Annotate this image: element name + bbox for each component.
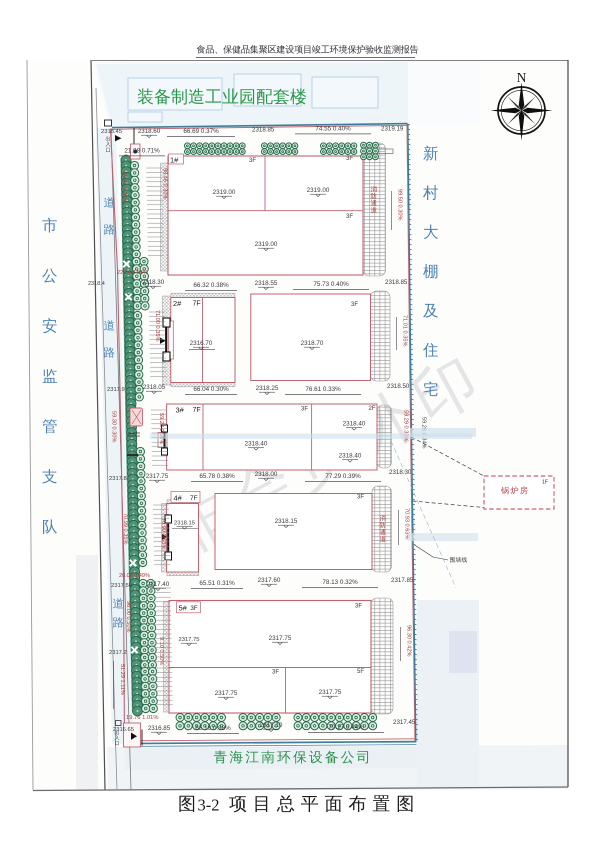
svg-text:66.69 0.37%: 66.69 0.37% (183, 128, 219, 135)
svg-text:65.51 0.31%: 65.51 0.31% (199, 580, 235, 587)
svg-text:3F: 3F (355, 604, 362, 610)
svg-text:2318.85: 2318.85 (252, 127, 275, 134)
svg-text:2F: 2F (369, 406, 376, 412)
svg-text:21.98 0.71%: 21.98 0.71% (124, 148, 160, 155)
svg-text:2316.85: 2316.85 (148, 725, 171, 732)
svg-text:96.30 0.42%: 96.30 0.42% (406, 625, 412, 656)
svg-text:2317.75: 2317.75 (215, 690, 238, 697)
svg-text:98.46 0.30%: 98.46 0.30% (162, 168, 168, 199)
svg-text:4#: 4# (174, 494, 183, 503)
svg-text:3F: 3F (346, 214, 353, 220)
svg-text:2319.00: 2319.00 (213, 189, 236, 196)
svg-text:2317.75: 2317.75 (179, 637, 200, 643)
svg-text:2317.8: 2317.8 (109, 476, 127, 482)
svg-text:3F: 3F (249, 158, 256, 164)
svg-text:N: N (517, 70, 527, 85)
svg-text:2317.9: 2317.9 (107, 387, 125, 393)
svg-text:2317.45: 2317.45 (393, 719, 416, 726)
svg-text:19.76 1.01%: 19.76 1.01% (126, 715, 159, 721)
svg-text:2318.55: 2318.55 (255, 280, 278, 287)
svg-text:2318.40: 2318.40 (245, 441, 268, 448)
svg-text:2318.15: 2318.15 (174, 521, 195, 527)
svg-text:2318.60: 2318.60 (138, 128, 161, 135)
svg-text:2319.00: 2319.00 (255, 241, 278, 248)
svg-text:2317.75: 2317.75 (146, 473, 169, 480)
svg-text:51.29 1.11%: 51.29 1.11% (119, 664, 125, 695)
svg-text:1F: 1F (542, 480, 548, 486)
svg-text:2317.75: 2317.75 (269, 635, 292, 642)
svg-text:78.13 0.32%: 78.13 0.32% (322, 579, 358, 586)
svg-text:2318.45: 2318.45 (101, 129, 122, 135)
svg-text:2317.10: 2317.10 (260, 722, 283, 729)
svg-text:74.55 0.40%: 74.55 0.40% (315, 126, 351, 133)
svg-text:2#: 2# (173, 299, 182, 308)
svg-text:59.46 0.30%: 59.46 0.30% (121, 172, 127, 203)
svg-text:2318.85: 2318.85 (385, 279, 408, 286)
svg-text:7F: 7F (190, 495, 198, 502)
svg-text:3F: 3F (357, 495, 364, 501)
svg-text:2318.40: 2318.40 (339, 453, 362, 460)
svg-text:2319.00: 2319.00 (307, 187, 330, 194)
svg-text:70.99 0.35%: 70.99 0.35% (122, 513, 128, 544)
svg-text:22.04 0.54%: 22.04 0.54% (117, 270, 148, 276)
svg-text:65.10 0.38%: 65.10 0.38% (195, 725, 231, 732)
svg-text:2318.00: 2318.00 (255, 471, 278, 478)
svg-text:2318.4: 2318.4 (88, 281, 105, 287)
svg-text:59.30 0.30%: 59.30 0.30% (111, 411, 117, 442)
svg-text:3F: 3F (346, 156, 353, 162)
svg-text:3F: 3F (351, 302, 358, 308)
svg-text:2318.40: 2318.40 (343, 421, 366, 428)
svg-text:77.29 0.39%: 77.29 0.39% (325, 473, 361, 480)
svg-text:2318.30: 2318.30 (389, 469, 412, 476)
svg-text:20.05 0.49%: 20.05 0.49% (119, 573, 150, 579)
svg-text:2319.19: 2319.19 (381, 126, 404, 133)
svg-text:7F: 7F (193, 301, 201, 308)
svg-text:3F: 3F (301, 407, 308, 413)
svg-text:3#: 3# (176, 406, 185, 415)
svg-text:2317.60: 2317.60 (258, 577, 281, 584)
svg-text:66.04 0.30%: 66.04 0.30% (193, 386, 229, 393)
svg-text:9.10 0.50%: 9.10 0.50% (158, 637, 164, 665)
svg-text:71.01 0.35%: 71.01 0.35% (402, 315, 408, 346)
svg-text:2317.75: 2317.75 (319, 689, 342, 696)
svg-text:5F: 5F (357, 669, 364, 675)
svg-text:70.90 0.63%: 70.90 0.63% (160, 518, 166, 549)
svg-text:2316.70: 2316.70 (190, 340, 213, 347)
svg-text:2316.65: 2316.65 (113, 727, 134, 733)
svg-text:76.61 0.33%: 76.61 0.33% (305, 386, 341, 393)
svg-text:79.27 0.44%: 79.27 0.44% (328, 724, 364, 731)
svg-text:2317.40: 2317.40 (147, 581, 170, 588)
svg-text:65.78 0.38%: 65.78 0.38% (199, 473, 235, 480)
svg-text:2318.15: 2318.15 (275, 518, 298, 525)
svg-text:3F: 3F (272, 670, 279, 676)
svg-text:66.32 0.38%: 66.32 0.38% (193, 282, 229, 289)
svg-text:7F: 7F (193, 407, 201, 414)
svg-text:1#: 1# (170, 156, 179, 165)
svg-text:2317.50: 2317.50 (111, 583, 132, 589)
svg-text:75.73 0.40%: 75.73 0.40% (313, 281, 349, 288)
svg-text:2318.30: 2318.30 (142, 279, 165, 286)
svg-text:2318.50: 2318.50 (387, 383, 410, 390)
svg-text:5#: 5# (179, 604, 188, 613)
svg-text:2317.85: 2317.85 (391, 577, 414, 584)
svg-text:2318.25: 2318.25 (256, 385, 279, 392)
svg-text:99.50 0.30%: 99.50 0.30% (397, 189, 403, 220)
svg-text:3-2: 3-2 (198, 796, 220, 815)
svg-text:2318.05: 2318.05 (143, 384, 166, 391)
svg-text:71.00 0.35%: 71.00 0.35% (154, 310, 160, 341)
svg-text:2317.2: 2317.2 (109, 650, 127, 656)
svg-text:59.28 0.56%: 59.28 0.56% (158, 413, 164, 444)
svg-text:3F: 3F (191, 606, 198, 612)
svg-text:96.00 0.50%: 96.00 0.50% (125, 601, 131, 632)
svg-text:2318.70: 2318.70 (301, 340, 324, 347)
